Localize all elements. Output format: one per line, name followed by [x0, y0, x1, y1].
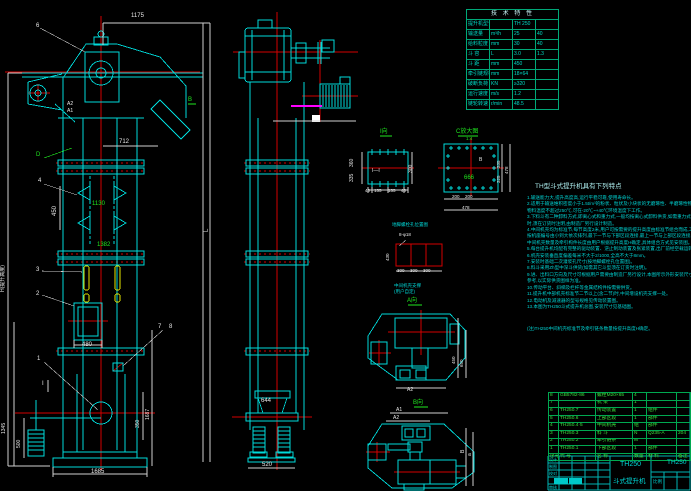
- view-label-b: B: [188, 97, 192, 103]
- dim-480: 480: [82, 342, 92, 348]
- dim-1175: 1175: [131, 13, 144, 19]
- dim-478: 478: [462, 206, 470, 211]
- dim-200b: 200: [465, 195, 473, 200]
- dim-300a: 300: [397, 269, 405, 274]
- title-row-check: 校对: [549, 471, 557, 477]
- dim-1130: 1130: [92, 201, 105, 207]
- dim-a2: A2: [67, 102, 73, 107]
- dim-1685: 1685: [91, 469, 104, 475]
- seg-155a: 155: [374, 189, 382, 194]
- green-leaders: [44, 104, 478, 407]
- title-scale-label: 比例: [653, 479, 662, 485]
- anchor-title: 地脚螺栓孔位置图: [392, 223, 428, 228]
- dim-a1b: A1: [396, 408, 402, 413]
- elevator-geometry: [22, 20, 498, 490]
- dim-a2c: A2: [393, 416, 399, 421]
- dim-300c: 300: [423, 269, 431, 274]
- dim-478r: 478: [505, 166, 510, 174]
- bom-table: 8GB5782-86螺栓M20×654 7机 架1 6TH250.7传动装置1组…: [548, 392, 691, 461]
- notes-title: TH型斗式提升机具有下列特点: [535, 180, 691, 190]
- tech-table: 技 术 特 性 提升机型号TH 250 输送量m³/h2540 给料粒度mm30…: [466, 9, 559, 110]
- dim-450r: 450: [452, 356, 457, 364]
- mark-ii: I—I: [372, 169, 380, 174]
- balloon-6: 6: [36, 23, 39, 29]
- title-row-design: 设计: [549, 457, 557, 463]
- balloon-8: 8: [169, 324, 172, 330]
- title-drawing-no: TH250: [667, 459, 687, 466]
- dim-1345: 1345: [2, 423, 7, 434]
- anchor-bolts: 8-φ18: [399, 233, 411, 238]
- seg-155b: 155: [388, 189, 396, 194]
- title-product: 斗式提升机: [613, 475, 646, 485]
- balloon-3: 3: [36, 267, 39, 273]
- dim-335r: 335: [497, 160, 502, 168]
- dim-200a: 200: [452, 195, 460, 200]
- dim-350: 350: [136, 420, 141, 428]
- notes-foot: (注)TH250中间机壳标准节及牵引链条数量按提升高度H确定。: [527, 326, 691, 332]
- title-row-approve: 审核: [549, 485, 557, 491]
- highlight-cell: [554, 478, 568, 484]
- dim-520: 520: [262, 462, 272, 468]
- dim-644: 644: [261, 398, 271, 404]
- dim-l: L: [204, 229, 210, 232]
- balloon-4: 4: [38, 178, 41, 184]
- title-model: TH250: [620, 461, 641, 468]
- balloon-7: 7: [158, 324, 161, 330]
- dim-650r: 650: [460, 359, 465, 367]
- seg-40b: 40: [401, 189, 406, 194]
- title-row-draft: 制图: [549, 464, 557, 470]
- seg-40a: 40: [365, 189, 370, 194]
- dim-360: 360: [350, 159, 355, 167]
- highlight-cell: [569, 478, 582, 484]
- view-label-c: C放大图: [456, 129, 478, 135]
- dim-a1: A1: [67, 109, 73, 114]
- balloon-2: 2: [36, 291, 39, 297]
- balloon-d: D: [36, 152, 40, 158]
- dim-h-height: H(提升高度): [1, 265, 6, 292]
- dim-325r: 325: [497, 175, 502, 183]
- view-label-i: I向: [380, 129, 388, 135]
- dim-300b: 300: [410, 269, 418, 274]
- feature-notes: TH型斗式提升机具有下列特点 1.输送能力大,提升高度高,运行平稳可靠,使用寿命…: [527, 180, 691, 310]
- dim-a2b: A2: [407, 388, 413, 393]
- balloon-1: 1: [37, 356, 40, 362]
- scale-c: 1:4: [466, 137, 472, 142]
- chain-links: [84, 266, 120, 302]
- dim-aa: a: [468, 453, 473, 456]
- tech-table-title: 技 术 特 性: [467, 10, 559, 20]
- support-note2: (用户自定): [394, 290, 415, 295]
- dim-430: 430: [386, 253, 391, 261]
- dim-1687: 1687: [146, 409, 151, 420]
- cell: 提升机型号: [467, 20, 490, 30]
- dim-1382: 1382: [97, 242, 110, 248]
- dim-450: 450: [52, 206, 58, 216]
- support-note1: 中间机壳支撑: [394, 284, 421, 289]
- view-label-b2: B向: [413, 400, 423, 406]
- mark-b: B: [479, 158, 482, 163]
- dim-335: 335: [350, 174, 355, 182]
- dim-712: 712: [119, 139, 129, 145]
- cad-sheet: 1175 6 A2 A1 B D 712 4 450 1130 1382 3 2…: [0, 0, 691, 491]
- dim-500: 500: [17, 440, 22, 448]
- section-mark-i: I: [42, 381, 44, 387]
- centerlines: [5, 12, 504, 472]
- view-label-a: A向: [407, 298, 417, 304]
- dim-666: 666: [464, 175, 474, 181]
- dim-bb: B: [461, 450, 466, 453]
- dim-300: 300: [409, 165, 414, 173]
